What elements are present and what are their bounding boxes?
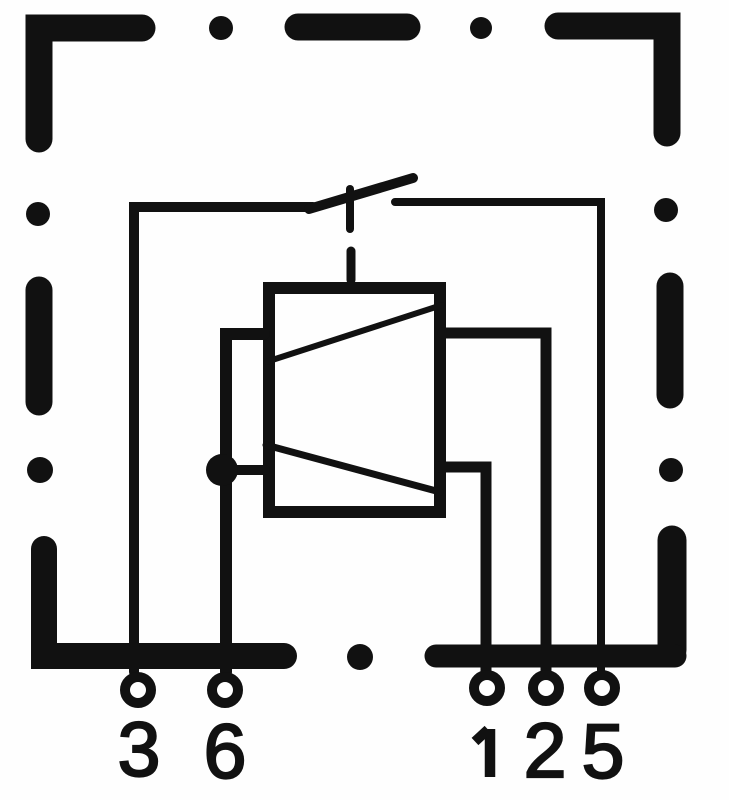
- svg-text:3: 3: [118, 707, 161, 793]
- svg-text:2: 2: [524, 708, 567, 794]
- svg-text:6: 6: [204, 709, 247, 795]
- svg-text:5: 5: [582, 709, 625, 795]
